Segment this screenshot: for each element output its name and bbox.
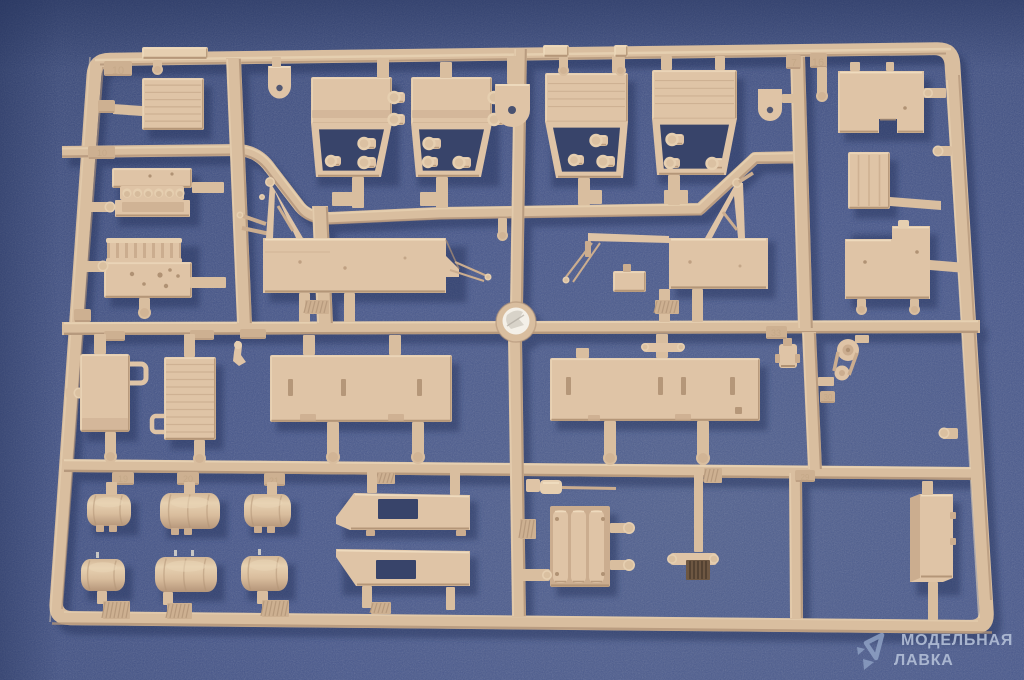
svg-text:7: 7 (791, 58, 797, 69)
svg-text:19: 19 (118, 474, 128, 484)
svg-text:ЛАВКА: ЛАВКА (894, 652, 954, 669)
svg-text:10: 10 (112, 65, 124, 77)
svg-text:30: 30 (824, 393, 833, 402)
svg-text:МОДЕЛЬНАЯ: МОДЕЛЬНАЯ (901, 632, 1013, 649)
svg-text:29: 29 (801, 473, 810, 482)
svg-text:10: 10 (97, 148, 107, 158)
svg-text:33: 33 (771, 328, 781, 338)
